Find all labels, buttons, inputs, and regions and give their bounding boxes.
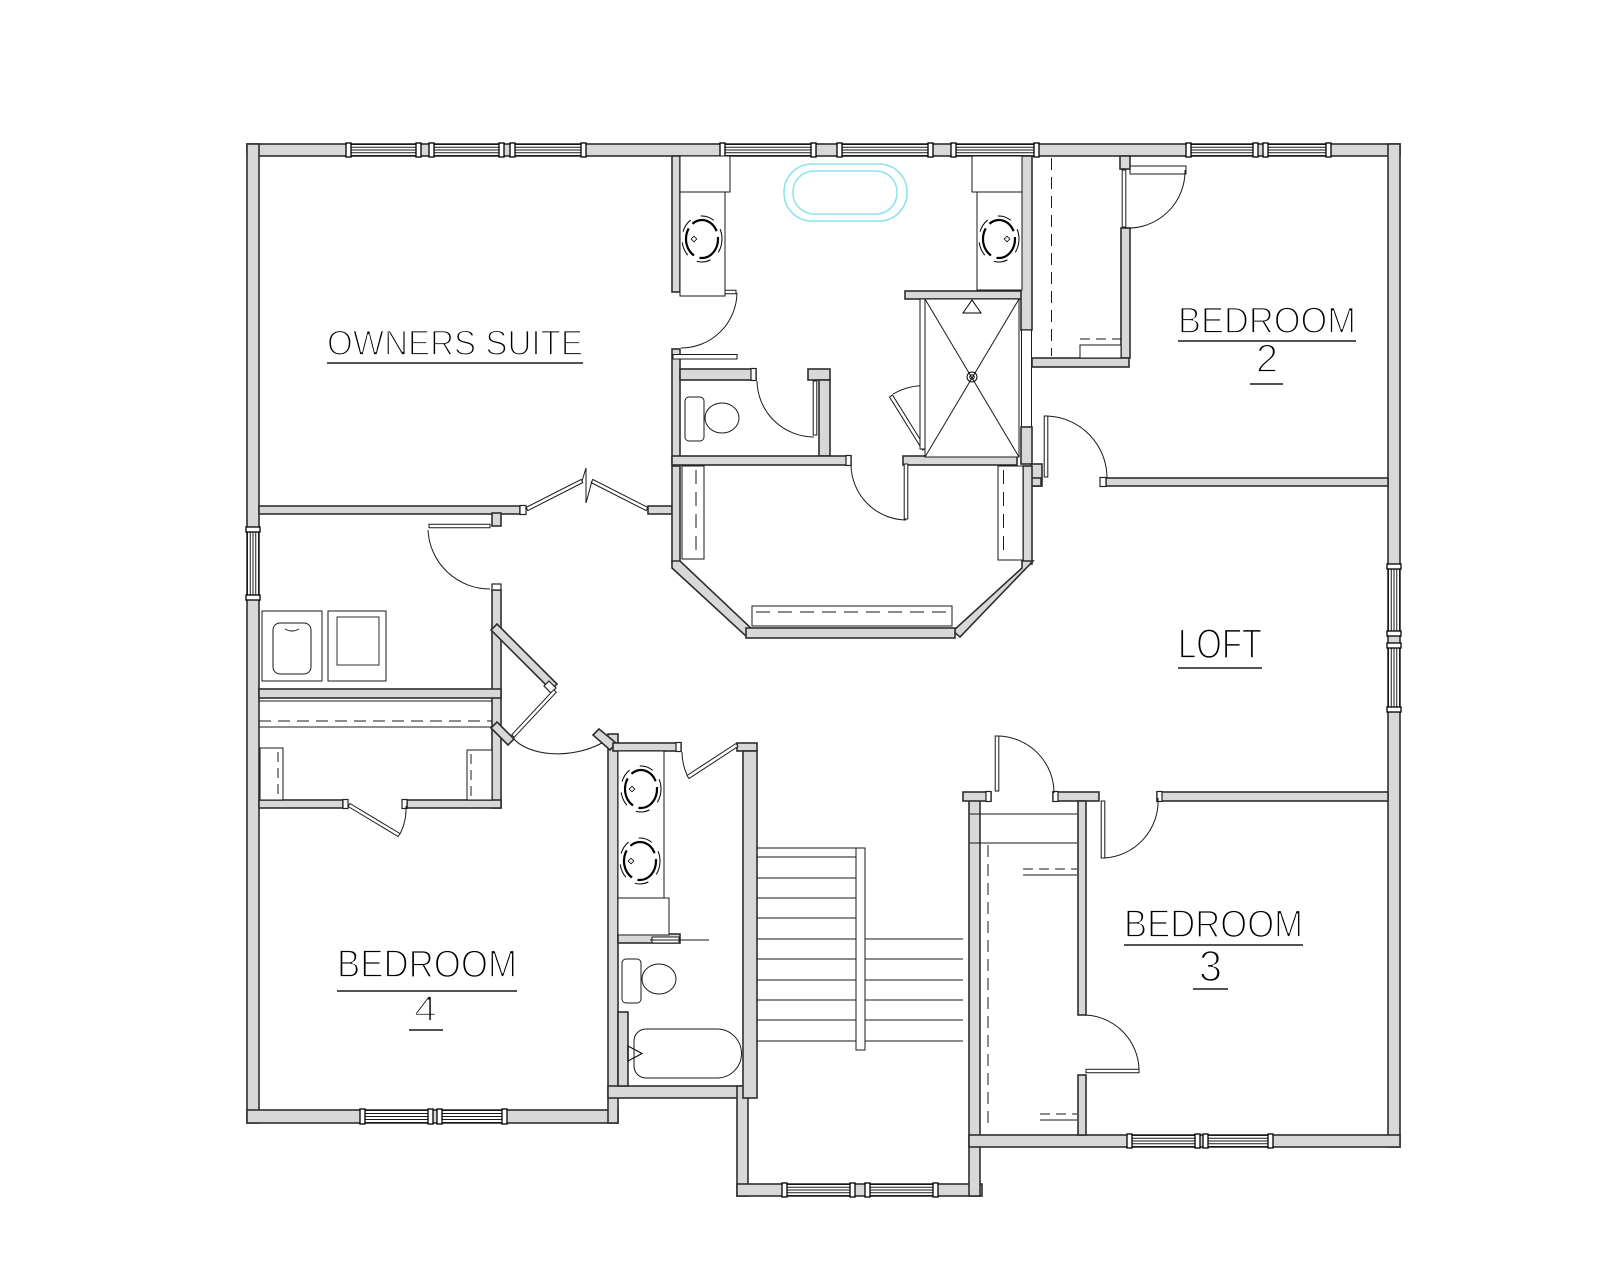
svg-text:BEDROOM: BEDROOM [1178, 300, 1356, 341]
svg-text:3: 3 [1199, 942, 1222, 991]
svg-text:LOFT: LOFT [1178, 620, 1262, 667]
svg-text:4: 4 [414, 988, 437, 1029]
svg-text:BEDROOM: BEDROOM [1124, 903, 1303, 946]
svg-text:2: 2 [1256, 337, 1278, 381]
svg-text:OWNERS SUITE: OWNERS SUITE [327, 324, 583, 363]
svg-text:BEDROOM: BEDROOM [337, 943, 517, 986]
